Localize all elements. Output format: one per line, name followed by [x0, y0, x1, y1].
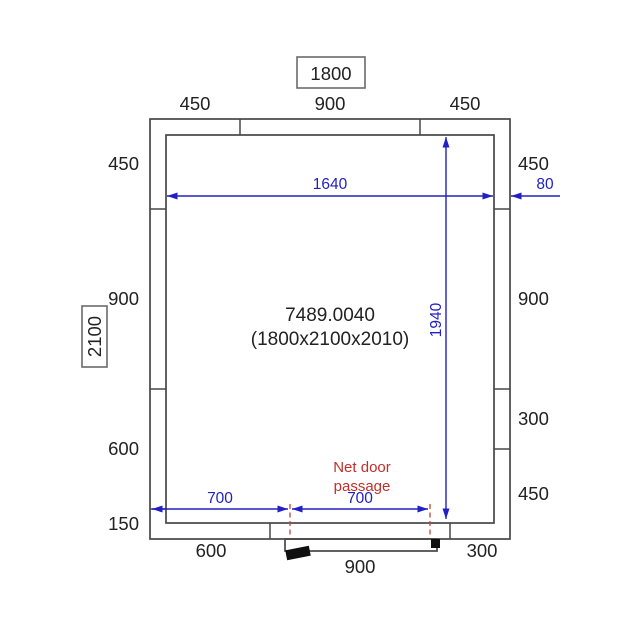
model-code: 7489.0040: [285, 305, 375, 326]
right-panel-dim: 450: [518, 483, 549, 504]
bottom-segment-dim: 300: [467, 540, 498, 561]
bottom-segment-dim: 600: [196, 540, 227, 561]
left-panel-labels: 450 900 600 150: [108, 153, 139, 534]
inner-width-dim-label: 1640: [313, 176, 348, 193]
bottom-segment-dim: 900: [345, 556, 376, 577]
top-panel-labels: 450 900 450: [180, 93, 481, 114]
top-panel-dim: 450: [180, 93, 211, 114]
bottom-segment-labels: 600 900 300: [196, 540, 498, 577]
floor-plan-svg: 1800 2100 450 900 450 450 900 600 150 45…: [0, 0, 640, 640]
top-panel-dim: 900: [315, 93, 346, 114]
model-overall-dimensions: (1800x2100x2010): [251, 329, 409, 350]
left-panel-dim: 900: [108, 288, 139, 309]
door-handle: [285, 546, 310, 560]
door-note-line2: passage: [334, 478, 391, 495]
top-panel-dim: 450: [450, 93, 481, 114]
right-panel-dim: 300: [518, 408, 549, 429]
model-annotation: 7489.0040 (1800x2100x2010): [251, 305, 409, 350]
overall-depth-box: 2100: [82, 306, 107, 367]
floor-plan-drawing: 1800 2100 450 900 450 450 900 600 150 45…: [0, 0, 640, 640]
right-panel-dim: 450: [518, 153, 549, 174]
overall-width-label: 1800: [310, 63, 351, 84]
right-panel-labels: 450 900 300 450: [518, 153, 549, 504]
door-note-line1: Net door: [333, 459, 391, 476]
right-panel-dim: 900: [518, 288, 549, 309]
left-panel-dim: 600: [108, 438, 139, 459]
left-panel-dim: 450: [108, 153, 139, 174]
inner-depth-dim-label: 1940: [428, 302, 445, 337]
overall-width-box: 1800: [297, 57, 365, 88]
overall-depth-label: 2100: [84, 316, 105, 357]
door-hinge-block: [431, 539, 440, 548]
left-panel-dim: 150: [108, 513, 139, 534]
wall-thickness-dim-label: 80: [536, 176, 554, 193]
door-offset-dim-label: 700: [207, 490, 233, 507]
